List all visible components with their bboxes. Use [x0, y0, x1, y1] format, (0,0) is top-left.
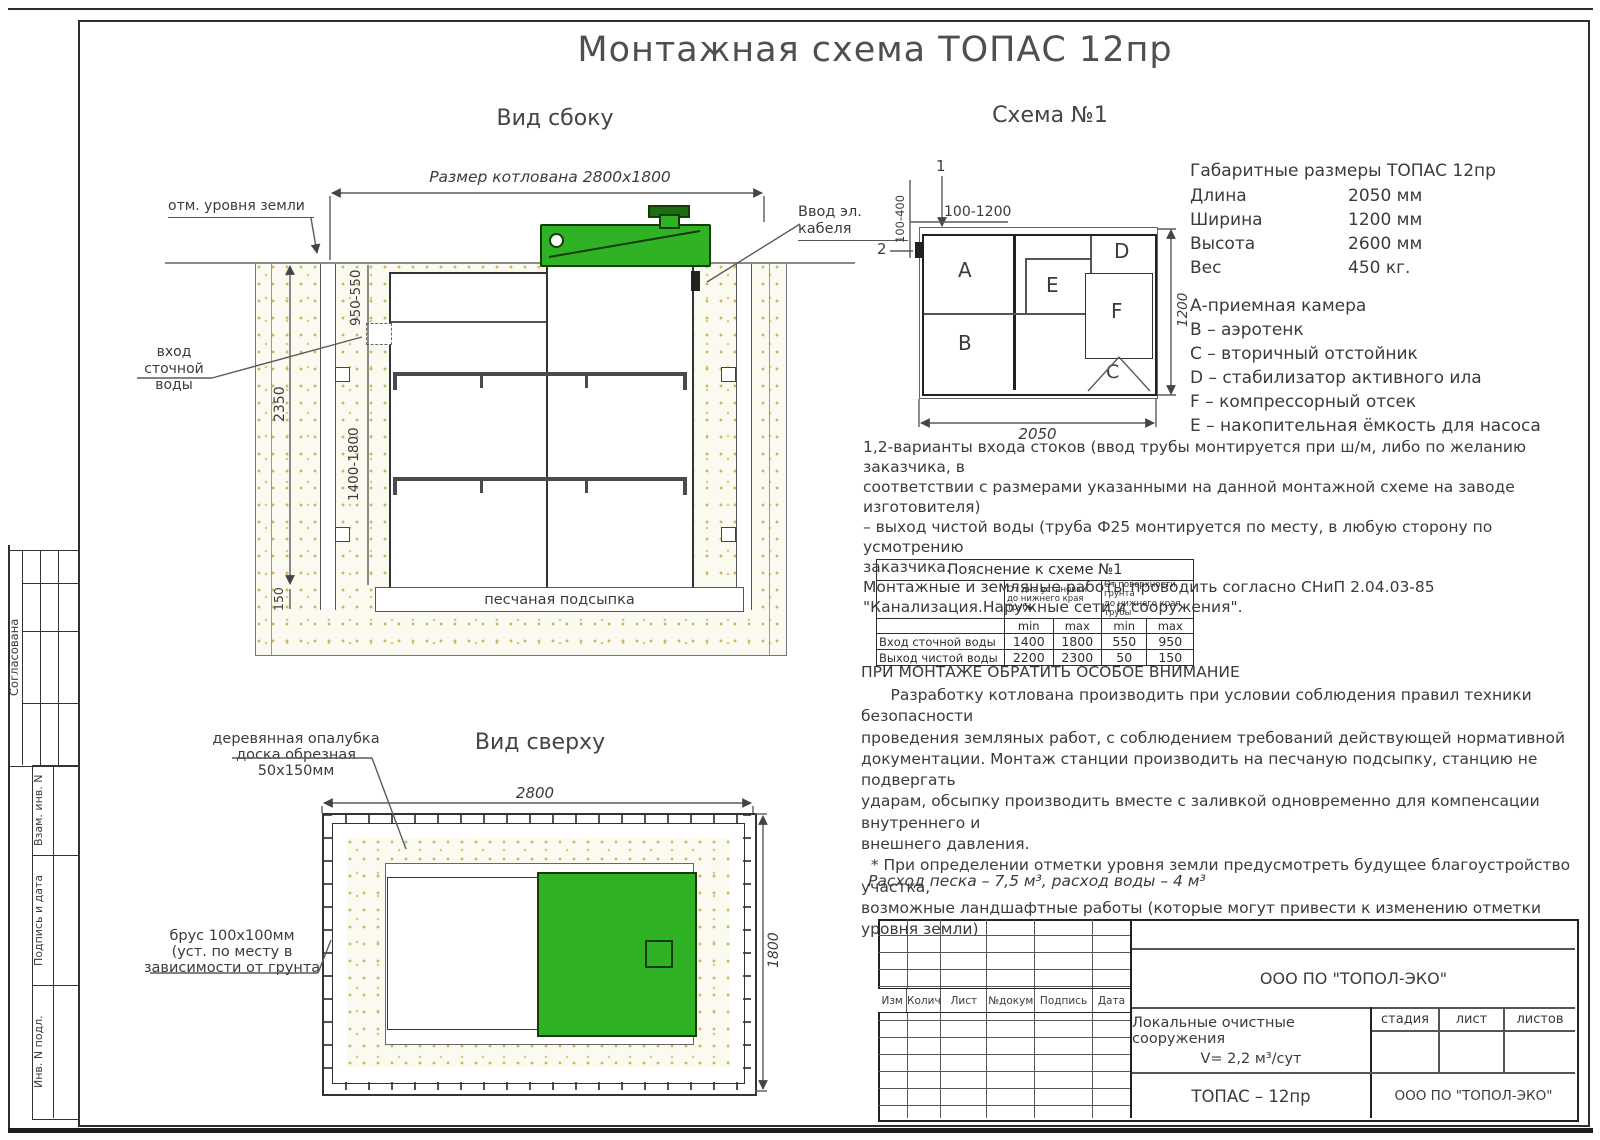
overall-row-value: 2600 мм	[1348, 234, 1422, 254]
legend-item: С – вторичный отстойник	[1190, 344, 1418, 364]
tank-bar-tick	[585, 376, 588, 388]
beam-label: брус 100х100мм (уст. по месту в зависимо…	[138, 928, 326, 976]
schema-dim-left: 100-400	[894, 180, 908, 258]
overall-row-value: 1200 мм	[1348, 210, 1422, 230]
tank-bar-lower	[393, 477, 687, 481]
schema-dim-top: 100-1200	[944, 204, 1011, 221]
lid-hole	[549, 233, 564, 248]
attention-title: ПРИ МОНТАЖЕ ОБРАТИТЬ ОСОБОЕ ВНИМАНИЕ	[861, 663, 1240, 681]
sand-consumption-note: Расход песка – 7,5 м³, расход воды – 4 м…	[868, 872, 1206, 890]
podpis-data-label: Подпись и дата	[33, 855, 53, 985]
side-view-title: Вид сбоку	[455, 106, 655, 132]
pipe-table-group1: От дна установки до нижнего края трубы	[1005, 581, 1102, 619]
pipe-table-max: max	[1147, 619, 1194, 634]
project-volume: V= 2,2 м³/сут	[1201, 1051, 1302, 1067]
pipe-table-min: min	[1005, 619, 1054, 634]
dim-2350: 2350	[272, 368, 289, 440]
pipe-table-title: Пояснение к схеме №1	[877, 560, 1194, 581]
stamp-hline	[22, 583, 78, 584]
compartment-c: C	[1106, 361, 1119, 383]
drawing-sheet: Монтажная схема ТОПАС 12пр Вид сбоку Схе…	[0, 0, 1600, 1140]
grid-vline	[907, 919, 908, 1118]
tank-bar-bracket	[683, 372, 687, 390]
model-name: ТОПАС – 12пр	[1191, 1087, 1310, 1106]
compartment-b: B	[958, 332, 972, 356]
legend-item: D – стабилизатор активного ила	[1190, 368, 1482, 388]
col-podpis: Подпись	[1034, 989, 1092, 1012]
tank-bar-bracket	[393, 477, 397, 495]
legend-item: Е – накопительная ёмкость для насоса	[1190, 416, 1541, 436]
tb-hline	[1372, 1030, 1575, 1032]
stamp-hline	[22, 631, 78, 632]
topview-tank-lid-green	[537, 872, 697, 1037]
topview-dim-width: 2800	[495, 785, 575, 803]
company-name-cell: ООО ПО "ТОПОЛ-ЭКО"	[1132, 950, 1575, 1006]
schema-marker-2: 2	[877, 241, 887, 259]
inlet-marker	[366, 323, 392, 345]
col-list: Лист	[940, 989, 986, 1012]
topview-formwork-tick-top	[324, 815, 751, 823]
model-cell: ТОПАС – 12пр	[1132, 1074, 1370, 1118]
schema-e-top	[1025, 258, 1090, 260]
legend-item: F – компрессорный отсек	[1190, 392, 1416, 412]
sand-bed-label: песчаная подсыпка	[484, 592, 634, 608]
overall-row-value: 450 кг.	[1348, 258, 1410, 278]
compartment-e: E	[1046, 274, 1059, 298]
topview-dim-height: 1800	[766, 920, 783, 980]
schema-inlet-tab	[915, 242, 922, 258]
pipe-table-cell: 1400	[1005, 634, 1054, 650]
overall-title: Габаритные размеры ТОПАС 12пр	[1190, 161, 1496, 181]
pipe-table-cell: 550	[1102, 634, 1147, 650]
sheet-bottom-thick-line	[8, 1128, 1593, 1133]
title-block-header-band: Изм Колич Лист №докум Подпись Дата	[878, 988, 1130, 1013]
grid-vline	[940, 919, 941, 1118]
schema-ab-divider	[924, 313, 1085, 315]
company-name-bottom: ООО ПО "ТОПОЛ-ЭКО"	[1395, 1088, 1553, 1104]
sheet-label: лист	[1456, 1012, 1487, 1027]
company-name: ООО ПО "ТОПОЛ-ЭКО"	[1260, 969, 1447, 988]
pit-right-inner-line	[769, 263, 770, 655]
attention-body: Разработку котлована производить при усл…	[861, 685, 1576, 941]
grid-vline	[1092, 919, 1093, 1118]
agreed-label: Согласована	[8, 550, 22, 765]
stamp-hline	[22, 703, 78, 704]
pipe-table-group2: От поверхности грунта до нижнего края тр…	[1102, 581, 1194, 619]
formwork-board-left	[320, 263, 336, 610]
topview-tank-white	[387, 877, 539, 1030]
sheets-label: листов	[1516, 1012, 1563, 1027]
lid-vent-stem	[659, 214, 680, 229]
tank-bar-bracket	[683, 477, 687, 495]
formwork-board-right	[736, 263, 752, 610]
pipe-table-row: Вход сточной воды 1400 1800 550 950	[877, 634, 1194, 650]
sheets-header: листов	[1505, 1009, 1575, 1029]
pipe-table-cell: 950	[1147, 634, 1194, 650]
ground-line	[165, 262, 855, 264]
stage-label: стадия	[1381, 1012, 1429, 1027]
schema-d-left	[1090, 236, 1092, 273]
grid-vline	[986, 919, 987, 1118]
page-title: Монтажная схема ТОПАС 12пр	[300, 30, 1450, 71]
col-izm: Изм	[878, 989, 906, 1012]
project-title: Локальные очистные сооружения	[1132, 1015, 1370, 1047]
top-view-title: Вид сверху	[430, 730, 650, 756]
overall-row-label: Длина	[1190, 186, 1247, 206]
overall-row-label: Вес	[1190, 258, 1221, 278]
grid-vline	[1034, 919, 1035, 1118]
tank-body-left	[389, 272, 550, 591]
legend-item: В – аэротенк	[1190, 320, 1304, 340]
vzam-inv-label: Взам. инв. N	[33, 765, 53, 855]
col-data: Дата	[1092, 989, 1130, 1012]
pipe-table-max: max	[1053, 619, 1102, 634]
compartment-d: D	[1114, 240, 1129, 264]
pipe-table-cell: 1800	[1053, 634, 1102, 650]
compartment-f: F	[1111, 300, 1123, 324]
col-ndokum: №докум	[986, 989, 1034, 1012]
formwork-tab	[335, 527, 350, 542]
schema-marker-1: 1	[936, 158, 946, 176]
sand-bed-strip: песчаная подсыпка	[375, 587, 744, 612]
tank-step-line	[391, 321, 546, 323]
tank-bar-tick	[585, 481, 588, 493]
col-kolich: Колич	[906, 989, 940, 1012]
cable-entry-tab	[691, 271, 700, 291]
formwork-tab	[721, 527, 736, 542]
dim-150: 150	[272, 584, 287, 614]
company2-cell: ООО ПО "ТОПОЛ-ЭКО"	[1372, 1074, 1575, 1118]
tank-bar-tick	[480, 481, 483, 493]
stamp-vline	[53, 765, 54, 1118]
pipe-table: Пояснение к схеме №1 От дна установки до…	[876, 559, 1194, 666]
inv-podl-label: Инв. N подл.	[33, 985, 53, 1118]
schema-e-left	[1025, 258, 1027, 313]
pipe-table-min: min	[1102, 619, 1147, 634]
ground-level-label: отм. уровня земли	[168, 198, 314, 218]
formwork-tab	[335, 367, 350, 382]
topview-lid-hatch-square	[645, 940, 673, 968]
tank-body-right	[546, 263, 694, 591]
formwork-tab	[721, 367, 736, 382]
tank-lid	[540, 224, 711, 267]
pit-size-dim: Размер котлована 2800х1800	[390, 168, 710, 186]
sheet-top-line	[8, 8, 1593, 10]
dim-950-550: 950-550	[349, 262, 365, 334]
cable-entry-label: Ввод эл. кабеля	[798, 204, 908, 241]
schema-title: Схема №1	[950, 103, 1150, 129]
legend-item: А-приемная камера	[1190, 296, 1366, 316]
inlet-label: вход сточной воды	[133, 344, 215, 394]
tank-bar-tick	[480, 376, 483, 388]
stage-header: стадия	[1372, 1009, 1438, 1029]
dim-1400-1800: 1400-1800	[347, 420, 363, 508]
sheet-header: лист	[1440, 1009, 1503, 1029]
pipe-table-row-label: Вход сточной воды	[877, 634, 1005, 650]
overall-row-label: Высота	[1190, 234, 1255, 254]
tank-bar-upper	[393, 372, 687, 376]
compartment-a: A	[958, 259, 972, 283]
project-cell: Локальные очистные сооружения V= 2,2 м³/…	[1132, 1009, 1370, 1072]
tank-bar-bracket	[393, 372, 397, 390]
overall-row-value: 2050 мм	[1348, 186, 1422, 206]
formwork-label: деревянная опалубка доска обрезная 50х15…	[212, 731, 380, 779]
overall-row-label: Ширина	[1190, 210, 1263, 230]
